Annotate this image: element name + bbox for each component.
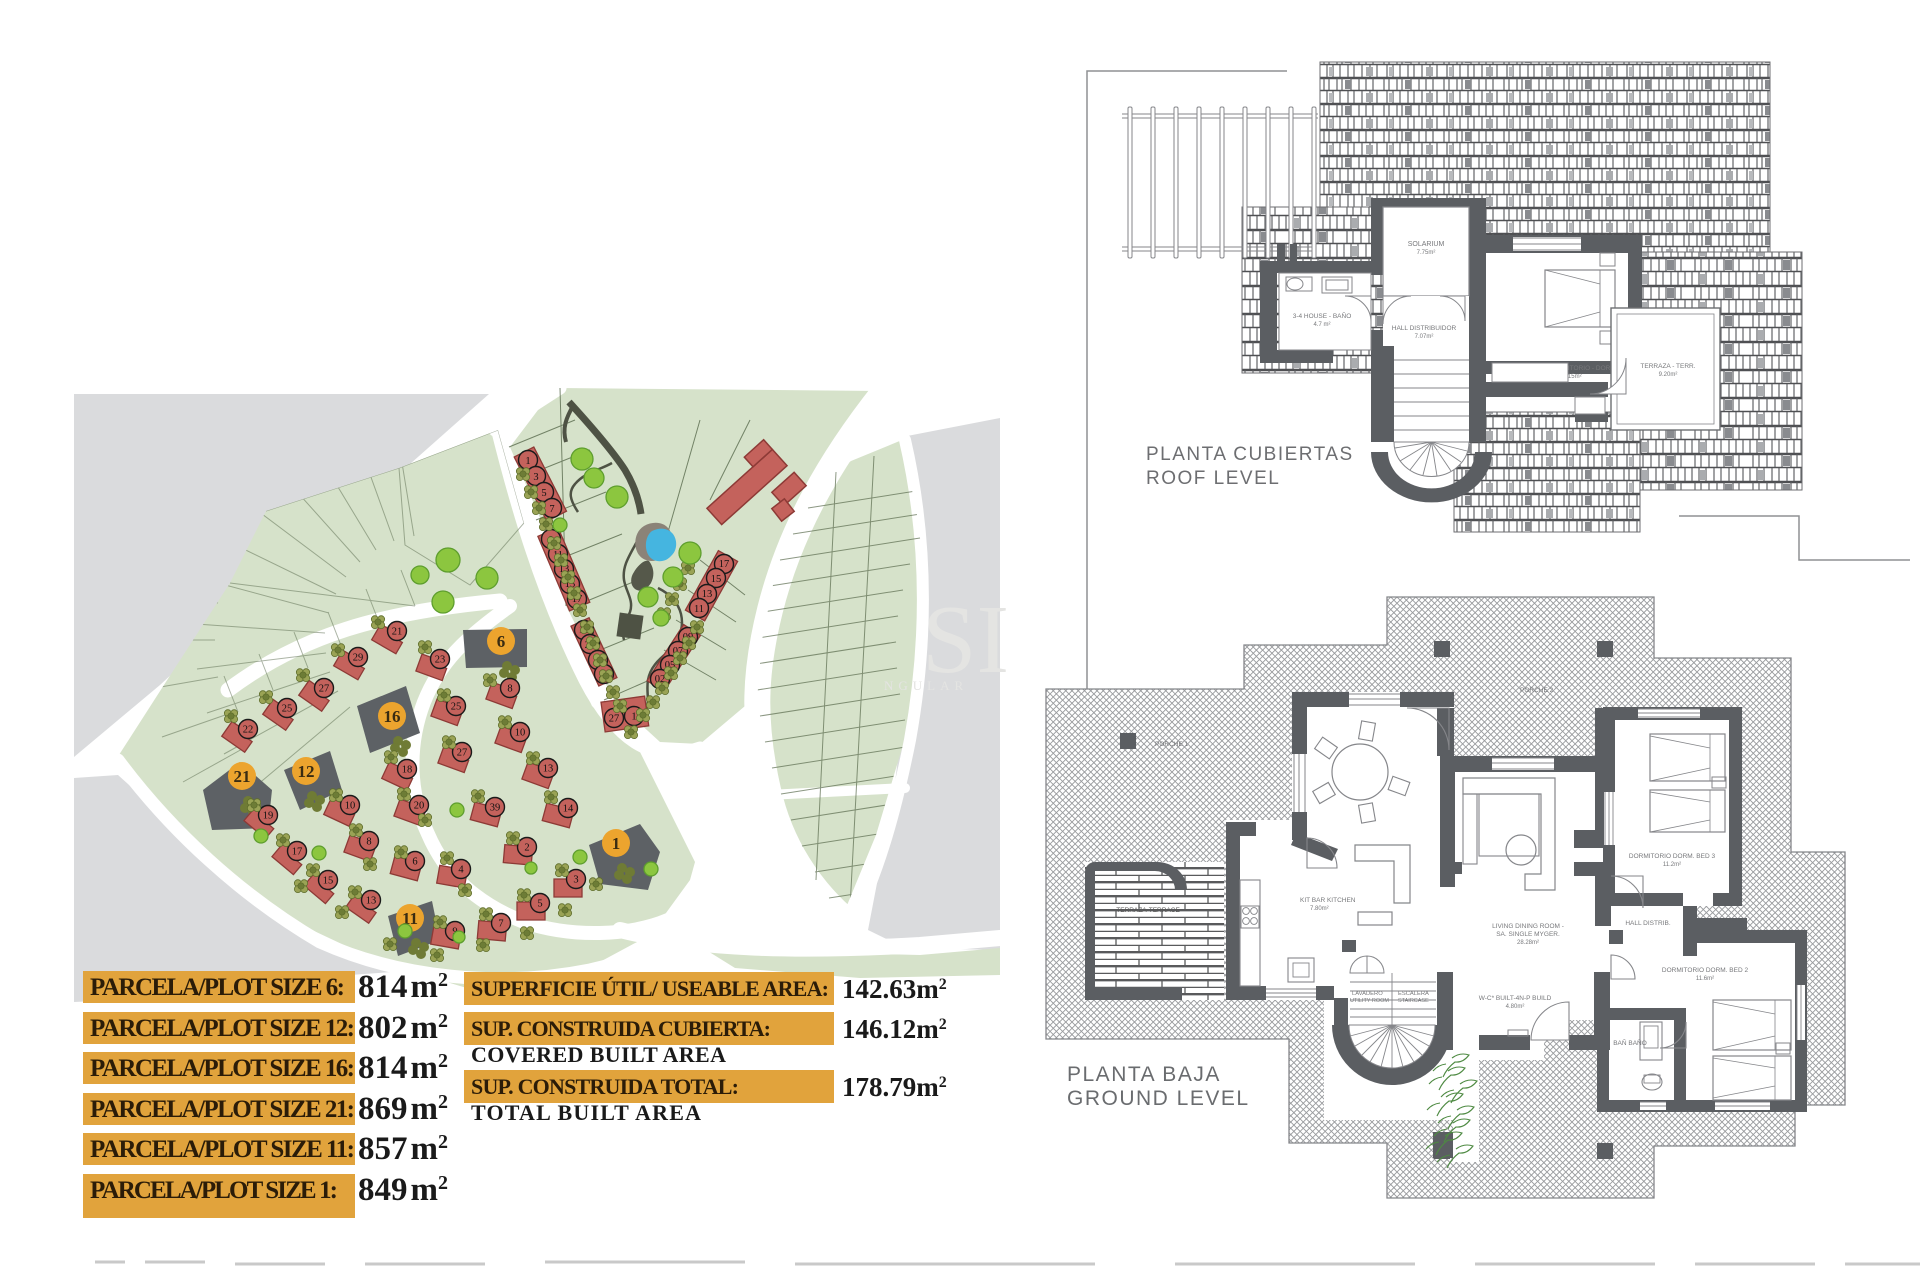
svg-text:7: 7 <box>498 919 503 930</box>
svg-text:SUPERFICIE ÚTIL/ USEABLE AREA:: SUPERFICIE ÚTIL/ USEABLE AREA: <box>471 976 829 1001</box>
svg-text:PARCELA/PLOT SIZE 12:: PARCELA/PLOT SIZE 12: <box>90 1015 355 1042</box>
svg-text:DORMITORIO DORM. BED 2: DORMITORIO DORM. BED 2 <box>1662 967 1749 974</box>
svg-text:814m2: 814m2 <box>358 969 448 1005</box>
svg-text:7.80m²: 7.80m² <box>1310 906 1329 912</box>
svg-text:21: 21 <box>234 767 251 786</box>
svg-text:3: 3 <box>533 472 538 483</box>
svg-text:4: 4 <box>458 865 464 876</box>
svg-text:3-4 HOUSE - BAÑO: 3-4 HOUSE - BAÑO <box>1293 311 1352 320</box>
svg-text:15: 15 <box>711 574 722 585</box>
svg-text:GROUND LEVEL: GROUND LEVEL <box>1067 1087 1250 1110</box>
svg-text:SUP. CONSTRUIDA TOTAL:: SUP. CONSTRUIDA TOTAL: <box>471 1074 739 1099</box>
svg-text:7: 7 <box>549 504 554 515</box>
svg-text:146.12m2: 146.12m2 <box>842 1014 947 1044</box>
svg-text:12: 12 <box>298 762 315 781</box>
svg-text:14: 14 <box>563 804 574 815</box>
svg-text:3: 3 <box>573 875 578 886</box>
svg-text:7.75m²: 7.75m² <box>1417 250 1436 256</box>
svg-text:857m2: 857m2 <box>358 1131 448 1167</box>
svg-text:NGULAR: NGULAR <box>884 678 968 693</box>
svg-text:TOTAL BUILT AREA: TOTAL BUILT AREA <box>471 1100 701 1125</box>
svg-text:1: 1 <box>525 456 530 467</box>
svg-text:142.63m2: 142.63m2 <box>842 974 947 1004</box>
svg-text:4.7 m²: 4.7 m² <box>1313 322 1330 328</box>
svg-text:BAÑ BAÑO: BAÑ BAÑO <box>1613 1038 1647 1047</box>
svg-text:10: 10 <box>345 801 356 812</box>
svg-text:DORMITORIO DORM. BED 3: DORMITORIO DORM. BED 3 <box>1629 853 1716 860</box>
svg-text:6: 6 <box>412 857 417 868</box>
svg-text:1: 1 <box>612 834 621 853</box>
svg-text:8: 8 <box>507 684 512 695</box>
svg-text:W-C* BUILT-4N-P BUILD: W-C* BUILT-4N-P BUILD <box>1479 995 1552 1002</box>
svg-text:27: 27 <box>319 684 330 695</box>
svg-text:HALL DISTRIB.: HALL DISTRIB. <box>1625 920 1670 927</box>
svg-text:11.6m²: 11.6m² <box>1696 976 1714 982</box>
svg-text:869m2: 869m2 <box>358 1091 448 1127</box>
svg-text:8: 8 <box>366 837 371 848</box>
svg-text:15: 15 <box>323 876 334 887</box>
svg-text:10: 10 <box>515 728 526 739</box>
svg-text:20: 20 <box>414 801 425 812</box>
svg-text:SUP. CONSTRUIDA CUBIERTA:: SUP. CONSTRUIDA CUBIERTA: <box>471 1016 771 1041</box>
svg-text:18: 18 <box>402 765 413 776</box>
svg-text:PORCHE 2: PORCHE 2 <box>1520 687 1554 694</box>
svg-text:23: 23 <box>435 655 446 666</box>
svg-text:5: 5 <box>537 899 542 910</box>
svg-text:29: 29 <box>353 653 364 664</box>
svg-text:TERRAZA - TERR.: TERRAZA - TERR. <box>1640 363 1695 370</box>
svg-text:LAVADERO: LAVADERO <box>1352 991 1383 997</box>
svg-text:5: 5 <box>541 488 546 499</box>
svg-text:ROOF LEVEL: ROOF LEVEL <box>1146 468 1280 489</box>
svg-text:PARCELA/PLOT SIZE 6:: PARCELA/PLOT SIZE 6: <box>90 974 345 1001</box>
svg-text:11: 11 <box>694 604 704 615</box>
svg-text:7.07m²: 7.07m² <box>1415 334 1434 340</box>
svg-text:13: 13 <box>366 896 377 907</box>
svg-text:PARCELA/PLOT SIZE 21:: PARCELA/PLOT SIZE 21: <box>90 1096 355 1123</box>
svg-text:COVERED BUILT AREA: COVERED BUILT AREA <box>471 1042 726 1067</box>
svg-text:KIT BAR KITCHEN: KIT BAR KITCHEN <box>1300 897 1356 904</box>
svg-text:ESCALERA: ESCALERA <box>1398 991 1429 997</box>
svg-text:28.28m²: 28.28m² <box>1517 940 1539 946</box>
svg-text:PLANTA BAJA: PLANTA BAJA <box>1067 1063 1221 1086</box>
svg-text:17: 17 <box>719 559 730 570</box>
svg-text:4.80m²: 4.80m² <box>1506 1004 1525 1010</box>
svg-text:13: 13 <box>702 589 713 600</box>
svg-text:PORCHE 1: PORCHE 1 <box>1155 741 1189 748</box>
svg-text:39: 39 <box>490 803 501 814</box>
svg-text:849m2: 849m2 <box>358 1172 448 1208</box>
svg-text:25: 25 <box>282 704 293 715</box>
svg-text:11.2m²: 11.2m² <box>1663 862 1681 868</box>
svg-text:6: 6 <box>497 632 506 651</box>
svg-text:PARCELA/PLOT SIZE 1:: PARCELA/PLOT SIZE 1: <box>90 1177 338 1204</box>
svg-text:SA. SINGLE MYGER.: SA. SINGLE MYGER. <box>1496 931 1560 938</box>
svg-text:PARCELA/PLOT SIZE 11:: PARCELA/PLOT SIZE 11: <box>90 1136 355 1163</box>
svg-text:22: 22 <box>243 725 254 736</box>
svg-text:PLANTA CUBIERTAS: PLANTA CUBIERTAS <box>1146 444 1354 465</box>
svg-text:STAIRCASE: STAIRCASE <box>1398 998 1429 1004</box>
svg-text:25: 25 <box>451 702 462 713</box>
svg-text:178.79m2: 178.79m2 <box>842 1072 947 1102</box>
svg-text:LIVING DINING ROOM -: LIVING DINING ROOM - <box>1492 923 1564 930</box>
svg-text:16: 16 <box>384 707 401 726</box>
svg-text:802m2: 802m2 <box>358 1010 448 1046</box>
svg-text:19: 19 <box>263 811 274 822</box>
svg-text:UTILITY ROOM: UTILITY ROOM <box>1350 998 1389 1004</box>
svg-text:17: 17 <box>292 847 303 858</box>
svg-text:2: 2 <box>524 843 529 854</box>
svg-text:27: 27 <box>457 748 468 759</box>
svg-text:13: 13 <box>543 764 554 775</box>
svg-text:HALL DISTRIBUIDOR: HALL DISTRIBUIDOR <box>1392 325 1457 332</box>
svg-text:TERRAZA-TERRACE: TERRAZA-TERRACE <box>1116 907 1180 914</box>
svg-text:27: 27 <box>609 714 620 725</box>
svg-text:814m2: 814m2 <box>358 1050 448 1086</box>
svg-text:SOLARIUM: SOLARIUM <box>1408 241 1445 248</box>
svg-text:1: 1 <box>631 712 636 723</box>
svg-text:9.20m²: 9.20m² <box>1659 372 1678 378</box>
svg-text:21: 21 <box>392 627 403 638</box>
svg-text:PARCELA/PLOT SIZE 16:: PARCELA/PLOT SIZE 16: <box>90 1055 355 1082</box>
